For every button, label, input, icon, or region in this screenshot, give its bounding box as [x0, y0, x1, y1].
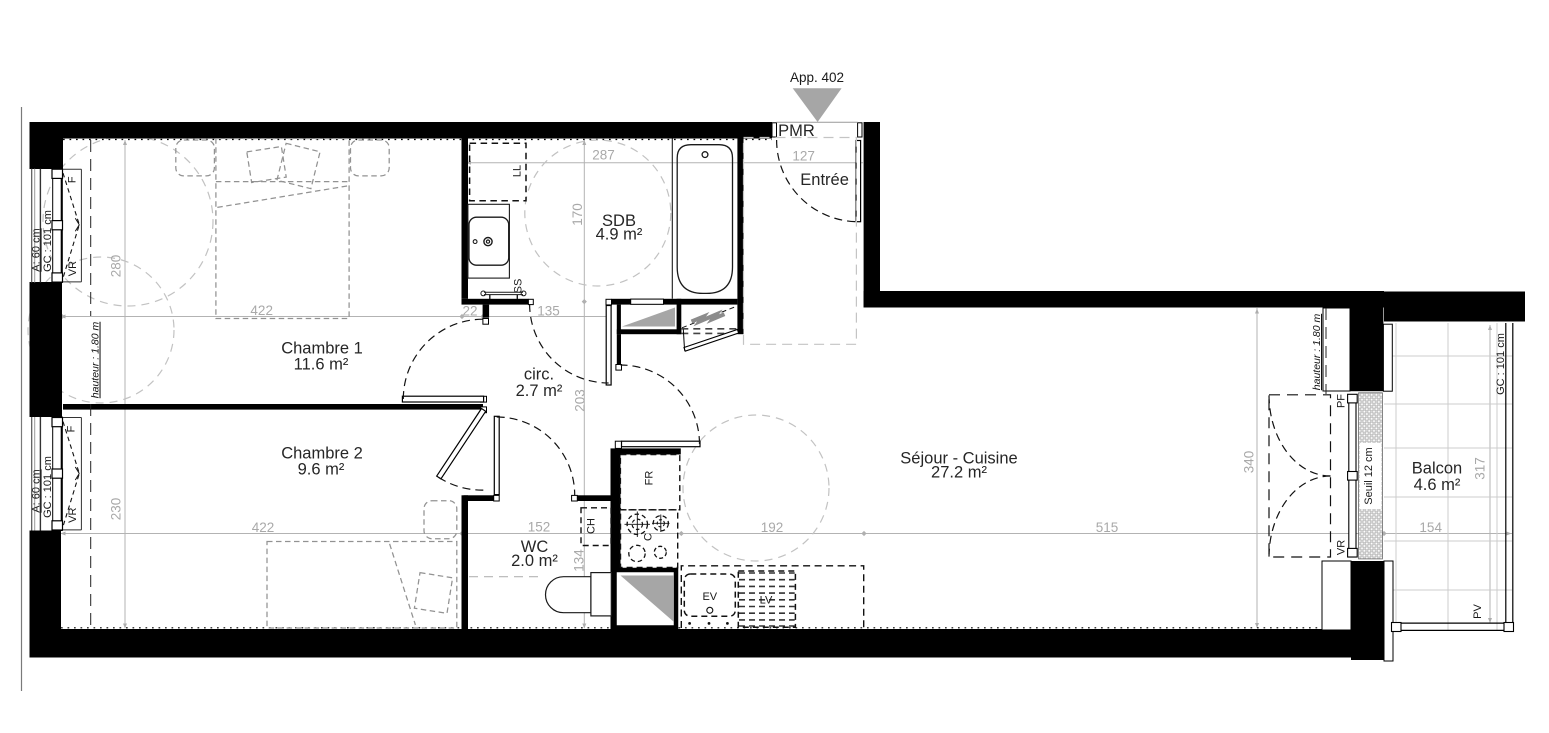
svg-text:CH: CH — [585, 518, 597, 534]
svg-text:154: 154 — [1419, 520, 1442, 535]
svg-text:192: 192 — [761, 520, 784, 535]
svg-text:LV: LV — [760, 594, 773, 606]
svg-text:280: 280 — [109, 255, 124, 278]
svg-text:11.6 m²: 11.6 m² — [294, 355, 349, 373]
svg-text:152: 152 — [528, 520, 551, 535]
svg-text:F: F — [67, 176, 79, 183]
svg-text:317: 317 — [1473, 457, 1488, 480]
svg-text:203: 203 — [573, 389, 588, 412]
svg-text:hauteur : 1.80 m: hauteur : 1.80 m — [90, 322, 102, 399]
svg-text:515: 515 — [1096, 520, 1119, 535]
svg-text:127: 127 — [792, 149, 815, 164]
svg-text:170: 170 — [570, 203, 585, 226]
svg-text:287: 287 — [592, 148, 615, 163]
svg-text:EV: EV — [702, 591, 717, 603]
svg-text:422: 422 — [252, 520, 275, 535]
svg-text:4.9 m²: 4.9 m² — [596, 226, 643, 244]
svg-text:2.0 m²: 2.0 m² — [511, 552, 558, 570]
svg-text:SS: SS — [512, 279, 524, 294]
svg-text:A: 60 cm: A: 60 cm — [30, 469, 42, 512]
svg-text:422: 422 — [250, 303, 273, 318]
svg-text:PV: PV — [1472, 604, 1484, 619]
svg-text:27.2 m²: 27.2 m² — [931, 463, 987, 481]
svg-text:2.7 m²: 2.7 m² — [516, 382, 563, 400]
svg-text:F: F — [65, 425, 77, 432]
svg-text:PMR: PMR — [778, 122, 815, 140]
svg-text:PF: PF — [1335, 394, 1347, 408]
svg-text:A: 60 cm: A: 60 cm — [30, 228, 42, 271]
svg-text:9.6 m²: 9.6 m² — [298, 461, 345, 479]
svg-text:VR: VR — [1335, 540, 1347, 555]
svg-text:135: 135 — [537, 304, 560, 319]
svg-text:LL: LL — [511, 165, 523, 177]
svg-text:230: 230 — [109, 498, 124, 521]
svg-text:FR: FR — [643, 471, 655, 486]
svg-text:App. 402: App. 402 — [790, 70, 844, 85]
svg-text:circ.: circ. — [524, 365, 554, 383]
svg-text:GC : 101 cm: GC : 101 cm — [42, 210, 54, 272]
svg-text:134: 134 — [571, 549, 586, 572]
svg-text:Seuil 12 cm: Seuil 12 cm — [1363, 447, 1375, 504]
svg-text:hauteur : 1.80 m: hauteur : 1.80 m — [1311, 314, 1323, 391]
svg-text:GC : 101 cm: GC : 101 cm — [1495, 333, 1507, 395]
svg-text:4.6 m²: 4.6 m² — [1414, 476, 1461, 494]
svg-text:VR: VR — [67, 261, 79, 276]
svg-text:GC : 101 cm: GC : 101 cm — [42, 456, 54, 518]
svg-text:Entrée: Entrée — [800, 171, 849, 189]
svg-text:340: 340 — [1241, 451, 1256, 474]
svg-text:22: 22 — [462, 304, 477, 319]
svg-text:Balcon: Balcon — [1412, 459, 1462, 477]
svg-text:VR: VR — [67, 508, 79, 523]
svg-text:C: C — [642, 533, 654, 541]
